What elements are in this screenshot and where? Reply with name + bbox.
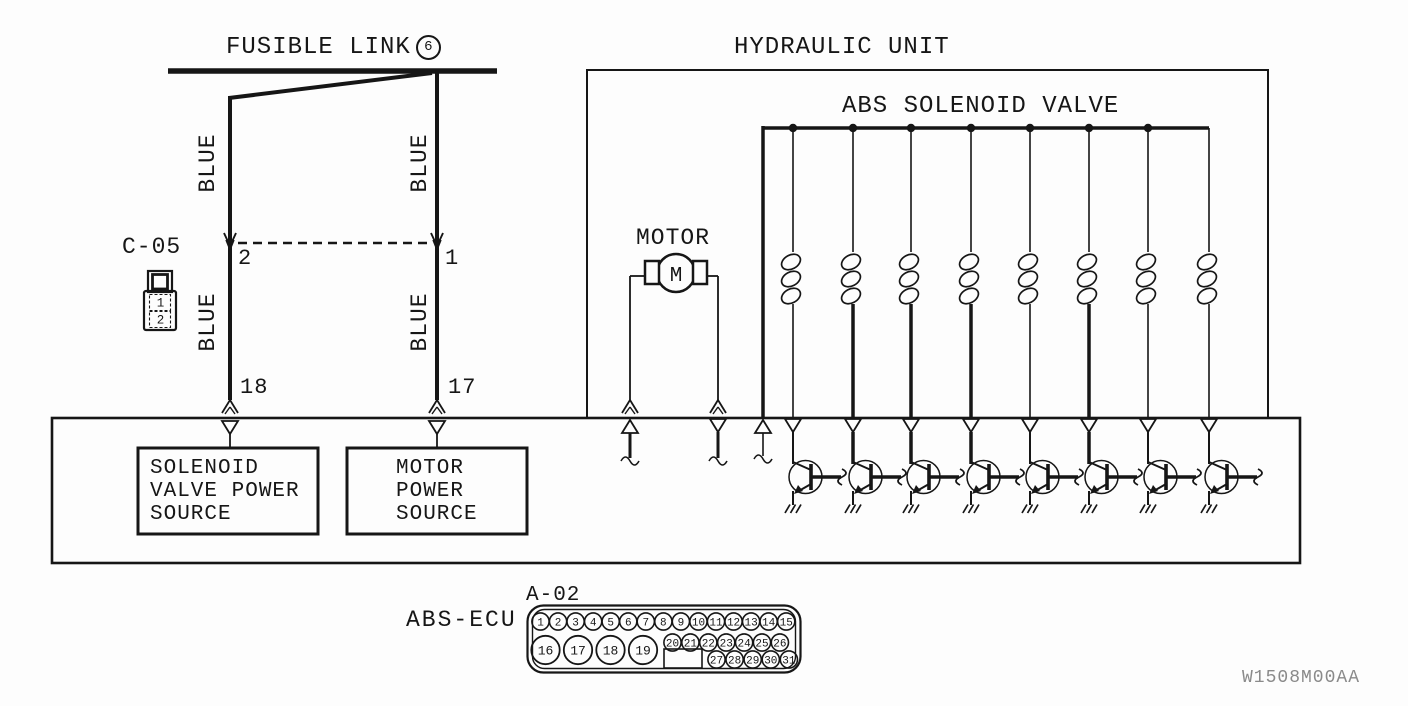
fusible-link-number-badge: 6 [416, 35, 441, 60]
ecu-pin-symbols [222, 233, 1217, 465]
c05-label: C-05 [122, 234, 181, 260]
svg-text:27: 27 [710, 655, 723, 667]
fusible-link-label: FUSIBLE LINK6 [226, 34, 441, 61]
wire-color-lower-right: BLUE [407, 276, 433, 368]
svg-text:24: 24 [737, 638, 751, 650]
svg-text:4: 4 [590, 617, 597, 629]
svg-text:12: 12 [727, 617, 740, 629]
svg-text:16: 16 [538, 644, 554, 659]
abs-ecu-label: ABS-ECU [406, 607, 517, 633]
svg-text:M: M [670, 265, 683, 288]
svg-text:19: 19 [635, 644, 651, 659]
solenoid-valve-power-source-text: SOLENOID VALVE POWER SOURCE [150, 457, 300, 526]
a02-blank-slot [664, 649, 702, 668]
svg-text:25: 25 [755, 638, 768, 650]
terminal-18-label: 18 [240, 375, 268, 400]
svg-text:6: 6 [625, 617, 632, 629]
drawing-code-watermark: W1508M00AA [1242, 668, 1360, 688]
solenoid-power-line1: SOLENOID [150, 457, 300, 480]
solenoid-power-line2: VALVE POWER [150, 480, 300, 503]
terminal-17-label: 17 [448, 375, 476, 400]
svg-text:15: 15 [780, 617, 793, 629]
fusible-link-text: FUSIBLE LINK [226, 34, 411, 61]
motor-power-source-text: MOTOR POWER SOURCE [396, 457, 478, 526]
svg-text:26: 26 [773, 638, 786, 650]
motor-brush-right [693, 261, 707, 284]
svg-text:23: 23 [720, 638, 733, 650]
motor-power-line3: SOURCE [396, 503, 478, 526]
svg-text:21: 21 [684, 638, 698, 650]
abs-solenoid-valve-label: ABS SOLENOID VALVE [842, 93, 1119, 120]
svg-text:13: 13 [744, 617, 757, 629]
wire-color-upper-left: BLUE [195, 117, 221, 209]
a02-label: A-02 [526, 584, 580, 607]
motor-power-line1: MOTOR [396, 457, 478, 480]
hydraulic-unit-label: HYDRAULIC UNIT [734, 34, 950, 61]
motor-label: MOTOR [636, 225, 710, 251]
solenoid-power-line3: SOURCE [150, 503, 300, 526]
svg-text:14: 14 [762, 617, 776, 629]
motor-brush-left [645, 261, 659, 284]
svg-text:20: 20 [666, 638, 679, 650]
svg-text:18: 18 [603, 644, 619, 659]
svg-text:1: 1 [537, 617, 544, 629]
svg-text:5: 5 [607, 617, 614, 629]
solenoid-branches [779, 128, 1262, 513]
svg-text:1: 1 [157, 297, 165, 311]
wire-color-lower-left: BLUE [195, 276, 221, 368]
motor-power-line2: POWER [396, 480, 478, 503]
svg-text:22: 22 [702, 638, 715, 650]
svg-text:30: 30 [764, 655, 777, 667]
svg-text:11: 11 [709, 617, 723, 629]
svg-text:31: 31 [782, 655, 796, 667]
wire-color-upper-right: BLUE [407, 117, 433, 209]
svg-text:28: 28 [728, 655, 741, 667]
terminal-2-label: 2 [238, 246, 252, 271]
svg-text:17: 17 [570, 644, 586, 659]
svg-text:2: 2 [157, 314, 165, 328]
abs-wiring-diagram: 12 M 12345678910111213141516171819202122… [0, 0, 1408, 706]
svg-text:7: 7 [642, 617, 649, 629]
svg-text:10: 10 [692, 617, 705, 629]
svg-text:2: 2 [555, 617, 562, 629]
svg-text:8: 8 [660, 617, 667, 629]
svg-text:29: 29 [746, 655, 759, 667]
terminal-1-label: 1 [445, 246, 459, 271]
svg-text:3: 3 [572, 617, 579, 629]
motor-letter: M [670, 265, 683, 288]
svg-text:9: 9 [678, 617, 685, 629]
